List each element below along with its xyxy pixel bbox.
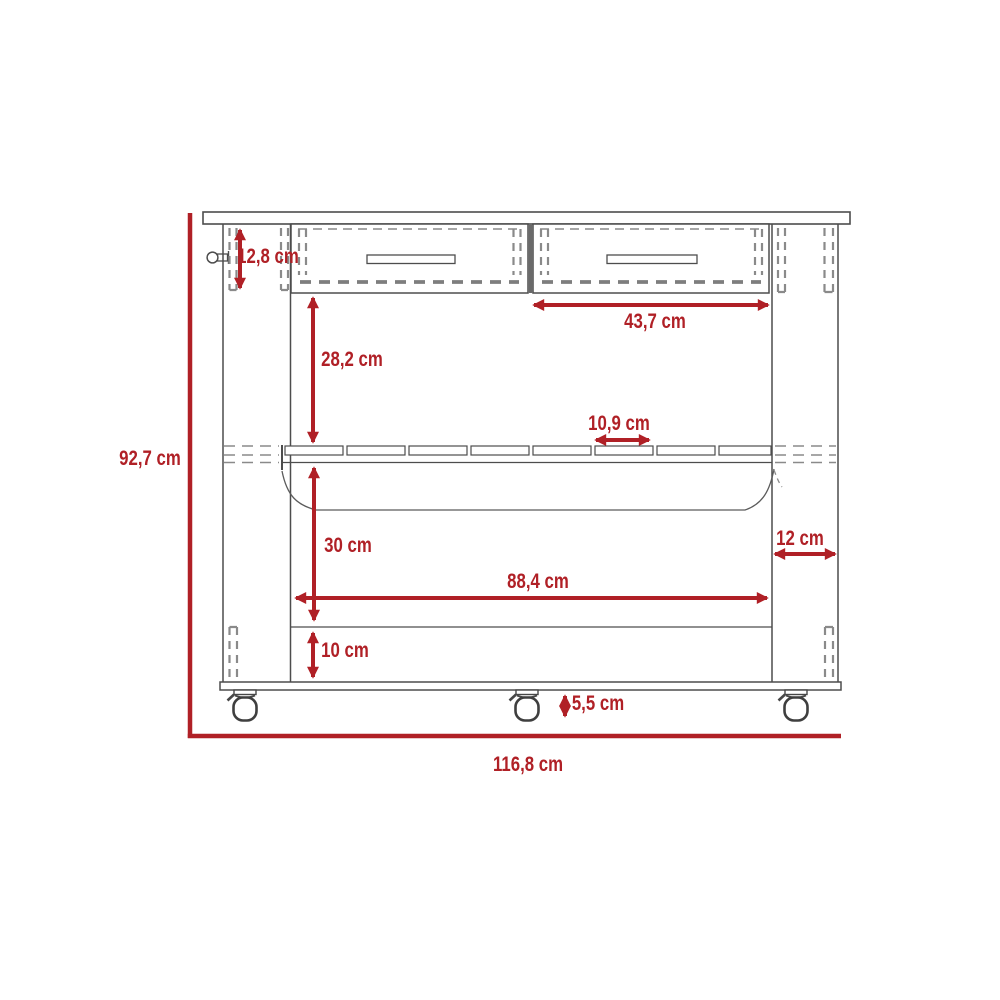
drawer-handle	[367, 255, 455, 264]
shelf-slat	[595, 446, 653, 455]
dimension-drawer-to-shelf: 28,2 cm	[321, 348, 383, 372]
drawer-handle	[607, 255, 697, 264]
side-knob	[207, 251, 228, 264]
dimension-overall-height: 92,7 cm	[119, 447, 181, 471]
hidden-rail	[778, 228, 785, 292]
basket	[282, 469, 782, 510]
hidden-rail	[825, 228, 834, 292]
dimension-shelf-to-base: 30 cm	[324, 534, 372, 558]
furniture-dimension-diagram: 92,7 cm 116,8 cm 12,8 cm 43,7 cm 28,2 cm…	[0, 0, 1000, 1000]
hidden-rail	[230, 228, 237, 290]
base-board	[220, 682, 841, 690]
shelf-slat	[409, 446, 467, 455]
slatted-shelf	[224, 445, 836, 470]
shelf-slat	[533, 446, 591, 455]
countertop	[203, 212, 850, 224]
shelf-slat	[657, 446, 715, 455]
dimension-caster-height: 5,5 cm	[572, 692, 624, 716]
drawer-right	[533, 224, 769, 293]
shelf-slat	[471, 446, 529, 455]
caster-right	[779, 690, 808, 721]
dimension-drawer-section-height: 12,8 cm	[237, 245, 299, 269]
hidden-rail	[230, 627, 238, 680]
casters	[228, 690, 808, 721]
dimension-base-section-height: 10 cm	[321, 639, 369, 663]
caster-left	[228, 690, 257, 721]
dimension-interior-width: 88,4 cm	[507, 570, 569, 594]
dimension-overall-width: 116,8 cm	[493, 753, 563, 777]
shelf-slat	[719, 446, 771, 455]
shelf-slat	[347, 446, 405, 455]
drawer-left	[291, 224, 528, 293]
drawing-svg	[0, 0, 1000, 1000]
bottom-panel-hidden-rails	[230, 627, 834, 680]
dimension-slat-width: 10,9 cm	[588, 412, 650, 436]
dimension-drawer-width: 43,7 cm	[624, 310, 686, 334]
dimension-side-panel-depth: 12 cm	[776, 527, 824, 551]
shelf-slat	[285, 446, 343, 455]
hidden-rail	[825, 627, 833, 680]
caster-center	[510, 690, 539, 721]
